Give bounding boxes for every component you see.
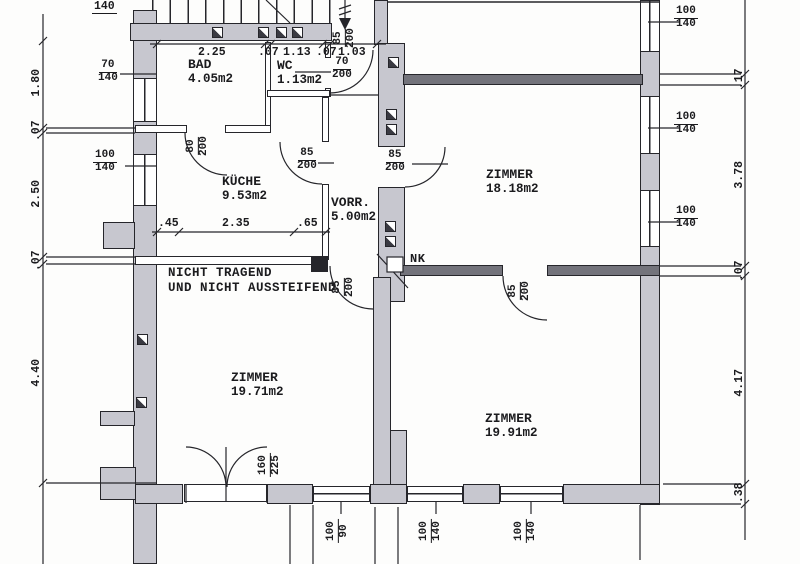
room-label-zimmer-sw: ZIMMER 19.71m2: [231, 370, 284, 400]
dim-right-1: 3.78: [733, 158, 747, 192]
door-size-bad: 80 200: [186, 134, 210, 158]
wall-stub: [103, 222, 135, 249]
floor-plan: BAD 4.05m2 WC 1.13m2 KÜCHE 9.53m2 VORR. …: [0, 0, 800, 564]
partition: [135, 125, 187, 133]
door-size-french: 160 225: [258, 453, 282, 477]
dim-right-4: .38: [733, 476, 747, 510]
wall: [267, 484, 313, 504]
stair-treads: [152, 0, 332, 23]
french-door-frame: [184, 484, 267, 502]
wall: [370, 484, 407, 504]
window-size-kueche: 100 140: [93, 150, 117, 174]
room-label-bad: BAD 4.05m2: [188, 57, 233, 87]
window-right-3: [640, 190, 660, 247]
window-kueche: [133, 154, 157, 206]
door-size-vorr-south: 85 200: [332, 275, 356, 299]
flue-icon: [386, 124, 397, 135]
wall: [374, 0, 388, 45]
window-size-bottom-1: 100 90: [326, 519, 350, 543]
dim-left-4: 4.40: [30, 356, 44, 390]
dim-left-3: .07: [30, 244, 44, 278]
structural-note: NICHT TRAGEND UND NICHT AUSSTEIFEND: [168, 266, 336, 296]
window-size-right-3: 100 140: [674, 206, 698, 230]
window-right-2: [640, 96, 660, 154]
wall: [563, 484, 660, 504]
wall-stub: [100, 411, 135, 426]
partition-nicht-tragend: [135, 256, 325, 265]
wall: [135, 484, 183, 504]
wall: [373, 277, 391, 487]
window-bottom-1: [313, 486, 370, 502]
wall: [640, 153, 660, 192]
door-size-wc: 70 200: [330, 57, 354, 81]
wall: [640, 246, 660, 505]
room-label-kueche: KÜCHE 9.53m2: [222, 174, 267, 204]
window-right-1: [640, 0, 660, 52]
beam: [400, 265, 503, 276]
room-label-vorraum: VORR. 5.00m2: [331, 195, 376, 225]
partition: [322, 97, 329, 142]
wall: [133, 10, 157, 80]
dim-kitchen-1: 2.35: [222, 217, 250, 231]
wall: [463, 484, 500, 504]
flue-icon: [212, 27, 223, 38]
door-size-kueche: 85 200: [295, 148, 319, 172]
flue-icon: [385, 236, 396, 247]
partial-window-label: 140: [92, 0, 117, 14]
window-size-right-1: 100 140: [674, 6, 698, 30]
door-size-zimmer-connect: 85 200: [508, 279, 532, 303]
dim-left-2: 2.50: [30, 177, 44, 211]
window-bottom-3: [500, 486, 563, 502]
nk-label: NK: [410, 252, 425, 266]
door-size-entrance: 85 200: [333, 26, 357, 50]
window-size-right-2: 100 140: [674, 112, 698, 136]
wall: [640, 51, 660, 97]
partition: [267, 90, 330, 97]
partition: [225, 125, 271, 133]
dim-right-0: .17: [733, 62, 747, 96]
dim-left-0: 1.80: [30, 66, 44, 100]
dim-top-2: 1.13: [283, 46, 311, 60]
flue-icon: [388, 57, 399, 68]
beam: [403, 74, 643, 85]
dim-kitchen-0: .45: [158, 217, 179, 231]
flue-icon: [276, 27, 287, 38]
partition: [322, 184, 329, 260]
flue-icon: [136, 397, 147, 408]
dim-kitchen-2: .65: [297, 217, 318, 231]
dim-right-2: .07: [733, 254, 747, 288]
wall: [390, 430, 407, 487]
flue-icon: [385, 221, 396, 232]
window-size-bottom-3: 100 140: [514, 519, 538, 543]
wall-stub: [100, 467, 136, 500]
door-size-vorr-zimmer: 85 200: [383, 150, 407, 174]
dim-top-1: .07: [258, 46, 279, 60]
window-bottom-2: [407, 486, 463, 502]
room-label-wc: WC 1.13m2: [277, 58, 322, 88]
flue-icon: [386, 109, 397, 120]
flue-icon: [137, 334, 148, 345]
window-size-bottom-2: 100 140: [419, 519, 443, 543]
dim-top-0: 2.25: [198, 46, 226, 60]
window-size-bad: 70 140: [96, 60, 120, 84]
room-label-zimmer-se: ZIMMER 19.91m2: [485, 411, 538, 441]
window-bad: [133, 78, 157, 122]
flue-icon: [258, 27, 269, 38]
dim-left-1: .07: [30, 114, 44, 148]
beam: [547, 265, 660, 276]
room-label-zimmer-ne: ZIMMER 18.18m2: [486, 167, 539, 197]
dim-right-3: 4.17: [733, 366, 747, 400]
flue-icon: [292, 27, 303, 38]
